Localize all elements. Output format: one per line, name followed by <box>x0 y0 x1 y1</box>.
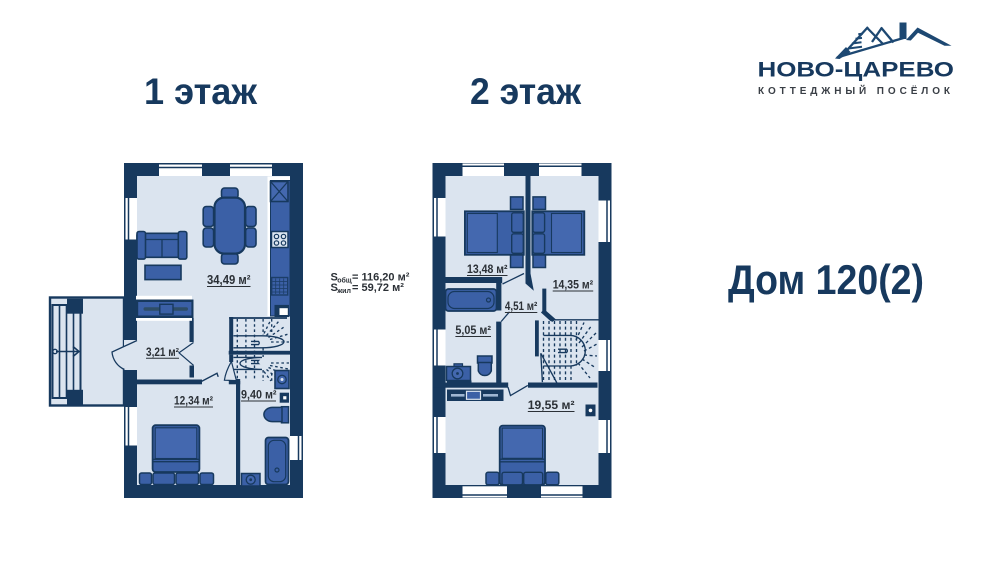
svg-text:жил: жил <box>336 288 351 295</box>
svg-text:14,35 м²: 14,35 м² <box>553 278 594 292</box>
svg-text:3,21 м²: 3,21 м² <box>146 347 179 359</box>
svg-text:5,05 м²: 5,05 м² <box>455 323 491 337</box>
svg-text:общ: общ <box>337 277 352 285</box>
svg-text:2 этаж: 2 этаж <box>470 71 582 112</box>
svg-text:12,34 м²: 12,34 м² <box>174 394 213 408</box>
svg-text:НОВО-ЦАРЕВО: НОВО-ЦАРЕВО <box>758 58 955 82</box>
svg-text:19,55 м²: 19,55 м² <box>528 398 575 412</box>
svg-text:13,48 м²: 13,48 м² <box>467 262 508 276</box>
svg-text:КОТТЕДЖНЫЙ ПОСЁЛОК: КОТТЕДЖНЫЙ ПОСЁЛОК <box>758 84 954 97</box>
svg-text:= 59,72 м²: = 59,72 м² <box>352 282 404 294</box>
svg-text:1 этаж: 1 этаж <box>144 71 258 112</box>
svg-text:4,51 м²: 4,51 м² <box>505 299 537 313</box>
svg-text:34,49 м²: 34,49 м² <box>207 272 251 287</box>
svg-text:9,40 м²: 9,40 м² <box>241 388 277 402</box>
svg-text:Дом 120(2): Дом 120(2) <box>728 256 924 303</box>
